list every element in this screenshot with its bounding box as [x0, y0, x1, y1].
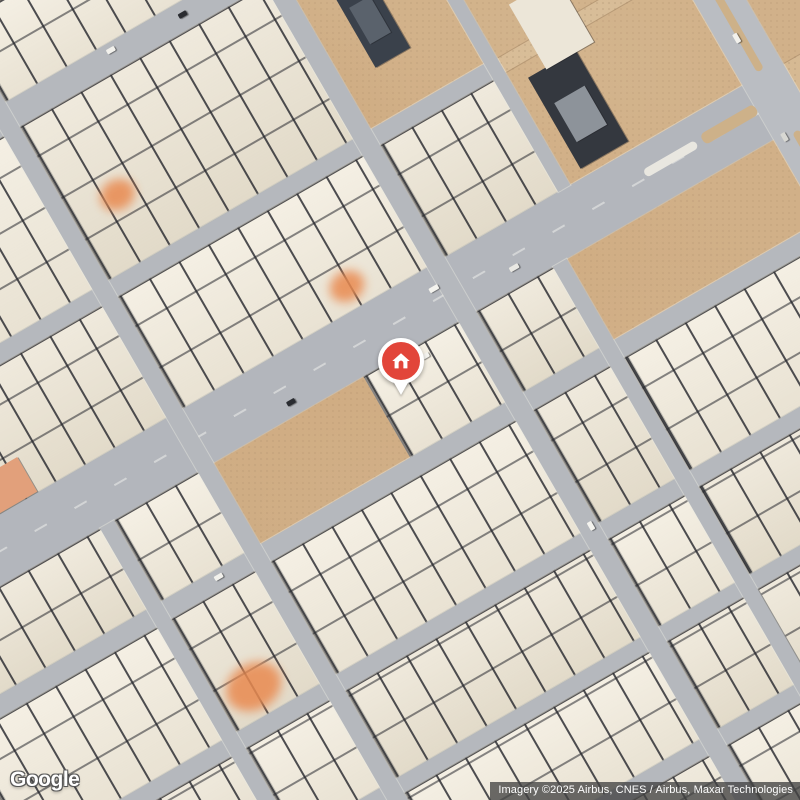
pin-tail — [393, 381, 409, 395]
imagery-attribution: Imagery ©2025 Airbus, CNES / Airbus, Max… — [490, 782, 800, 800]
location-pin[interactable] — [378, 338, 424, 395]
street-grid — [0, 0, 800, 800]
google-logo[interactable]: Google — [10, 768, 79, 792]
house-icon — [390, 350, 412, 372]
satellite-map[interactable]: Google Imagery ©2025 Airbus, CNES / Airb… — [0, 0, 800, 800]
pin-circle — [378, 338, 424, 384]
